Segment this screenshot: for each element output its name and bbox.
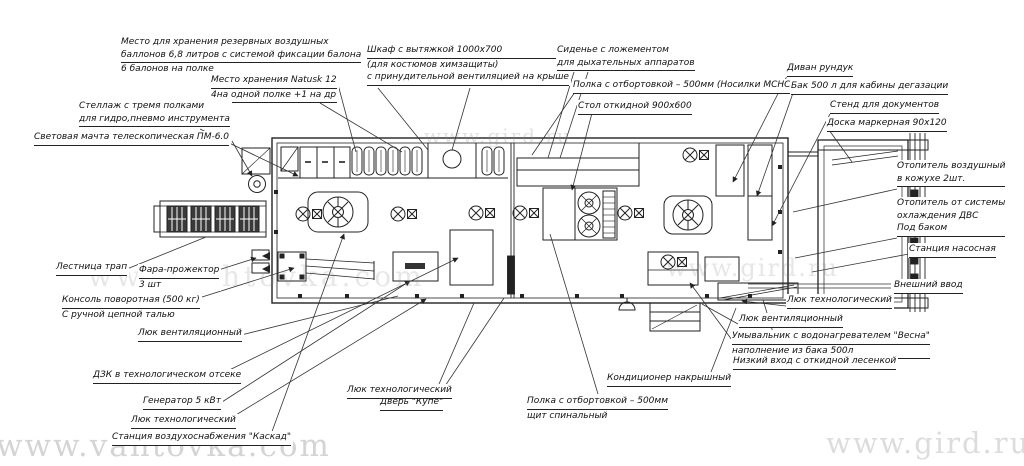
van-body [272, 138, 788, 303]
label-kaskad-station: Станция воздухоснабжения "Каскад" [111, 431, 293, 446]
label-tool-rack: Стеллаж с тремя полками для гидро,пневмо… [78, 100, 232, 127]
label-document-stand: Стенд для документов [829, 99, 941, 114]
ladder-gangway-symbol [154, 201, 266, 237]
dzk-bay [450, 230, 493, 285]
label-exhaust-cabinet: Шкаф с вытяжкой 1000х700 (для костюмов х… [366, 44, 571, 86]
label-generator: Генератор 5 кВт [142, 395, 223, 410]
label-rotary-console: Консоль поворотная (500 кг) С ручной цеп… [61, 294, 202, 321]
label-vent-hatch-left: Люк вентиляционный [137, 327, 244, 342]
label-natusk-storage: Место хранения Natusk 12 4на одной полке… [210, 74, 339, 103]
label-folding-table: Стол откидной 900х600 [577, 100, 694, 115]
searchlight-bracket [252, 250, 270, 273]
label-sofa-locker: Диван рундук [786, 62, 855, 77]
left-lamps [296, 206, 495, 221]
label-tech-hatch-right: Люк технологический [786, 294, 894, 309]
label-external-input: Внешний ввод [893, 279, 965, 294]
label-shelf-msns: Полка с отбортовкой – 500мм (Носилки МСН… [572, 79, 796, 94]
label-searchlight: Фара-прожектор 3 шт [138, 264, 221, 291]
middle-compartment-fixtures [517, 143, 772, 285]
label-shelf-spinal: Полка с отбортовкой – 500мм щит спинальн… [526, 395, 670, 422]
label-pump-station: Станция насосная [908, 243, 998, 258]
label-dzk: ДЗК в технологическом отсеке [92, 369, 243, 384]
technical-drawing-page: www.vahtovka.com www.gird.ru www.gird.ru… [0, 0, 1024, 466]
rotary-console-box [278, 252, 374, 281]
light-mast-symbol [249, 176, 266, 193]
partition-wall [508, 143, 515, 298]
label-tech-hatch-left: Люк технологический [130, 414, 238, 429]
kaskad-unit [308, 192, 368, 232]
middle-lamps [513, 148, 709, 269]
label-vent-hatch-right: Люк вентиляционный [738, 313, 845, 328]
label-seat-lodgement: Сиденье с ложементом для дыхательных апп… [556, 44, 697, 71]
label-ladder-gangway: Лестница трап [55, 261, 129, 276]
roof-ac-unit [664, 196, 712, 234]
label-tech-hatch-mid: Люк технологический [346, 384, 454, 399]
label-engine-heater: Отопитель от системы охлаждения ДВС Под … [896, 197, 1007, 237]
label-marker-board: Доска маркерная 90х120 [826, 117, 949, 132]
entry-steps [650, 303, 700, 331]
label-reserve-cylinders: Место для хранения резервных воздушных б… [120, 36, 363, 76]
exterior-left [154, 148, 270, 273]
label-light-mast: Световая мачта телескопическая ПМ-6.0 [33, 131, 231, 146]
generator-box [393, 252, 438, 281]
label-degassing-tank: Бак 500 л для кабины дегазации [790, 80, 950, 95]
label-low-entrance: Низкий вход с откидной лесенкой [732, 355, 898, 370]
table-unit [543, 188, 617, 240]
label-roof-ac: Кондиционер накрышный [606, 372, 733, 387]
label-air-heater: Отопитель воздушный в кожухе 2шт. [896, 160, 1007, 187]
